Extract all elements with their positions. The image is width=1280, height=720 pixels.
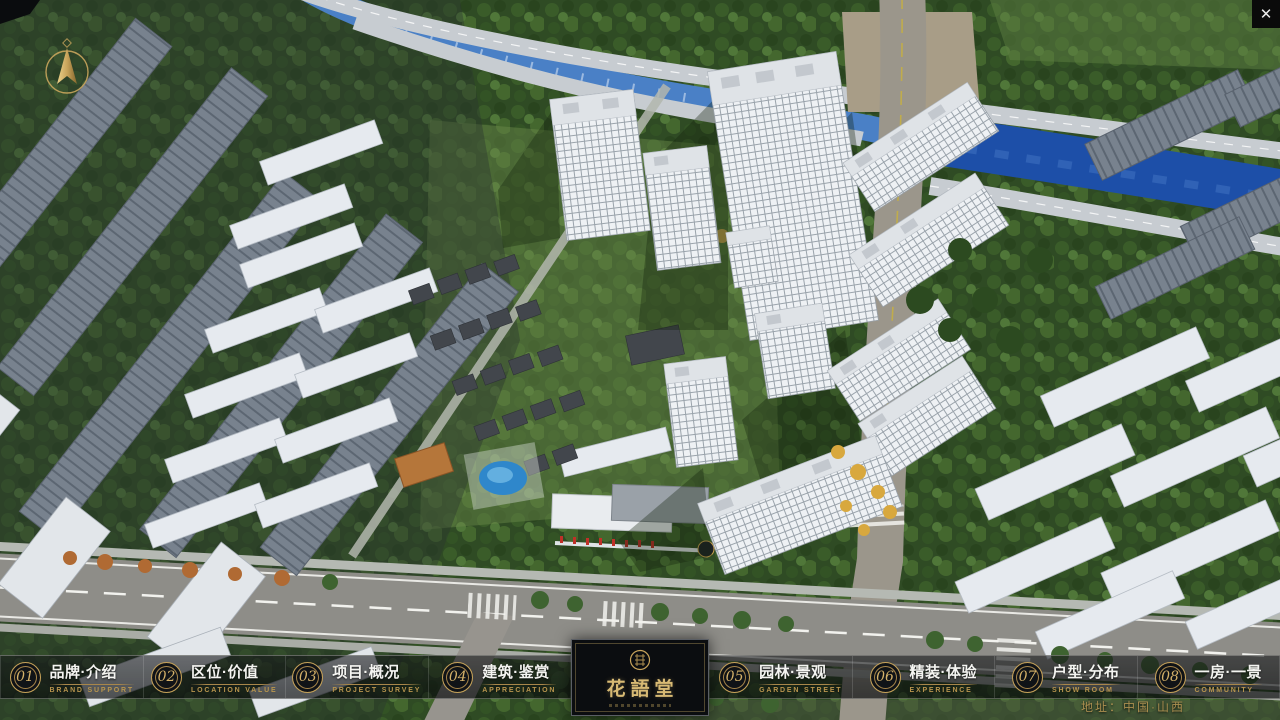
logo-seal-icon (629, 649, 651, 671)
nav-number-badge: 02 (151, 662, 182, 693)
nav-number-badge: 06 (870, 662, 901, 693)
nav-gold-rule (1195, 684, 1263, 685)
nav-label-zh: 建筑·鉴赏 (482, 661, 550, 682)
nav-item-garden-landscape[interactable]: 05 园林·景观GARDEN STREET (710, 656, 853, 698)
project-logo-panel[interactable]: 花語堂 (571, 639, 709, 716)
nav-label-en: PROJECT SURVEY (332, 687, 421, 694)
nav-label-en: APPRECIATION (482, 687, 556, 694)
aerial-map-view[interactable]: .tw{fill:url(#pw);stroke:#98a0a8;stroke-… (0, 0, 1280, 720)
presentation-window: .tw{fill:url(#pw);stroke:#98a0a8;stroke-… (0, 0, 1280, 720)
close-button[interactable]: ✕ (1252, 0, 1280, 28)
nav-gold-rule (50, 684, 134, 685)
nav-label-zh: 项目·概况 (332, 661, 400, 682)
nav-number-badge: 05 (719, 662, 750, 693)
nav-group-right: 05 园林·景观GARDEN STREET 06 精装·体验EXPERIENCE… (709, 656, 1280, 698)
nav-number-badge: 04 (442, 662, 473, 693)
nav-number-badge: 01 (10, 662, 41, 693)
nav-label-zh: 一房·一景 (1195, 661, 1263, 682)
nav-label-en: GARDEN STREET (759, 687, 842, 694)
nav-label-en: BRAND SUPPORT (50, 687, 134, 694)
nav-label-zh: 园林·景观 (759, 661, 827, 682)
nav-label-zh: 区位·价值 (191, 661, 259, 682)
nav-item-room-view[interactable]: 08 一房·一景COMMUNITY (1138, 656, 1280, 698)
nav-label-zh: 品牌·介绍 (50, 661, 118, 682)
nav-label-en: SHOW ROOM (1052, 687, 1114, 694)
close-icon: ✕ (1260, 5, 1273, 23)
nav-gold-rule (191, 684, 277, 685)
nav-item-interior-experience[interactable]: 06 精装·体验EXPERIENCE (853, 656, 996, 698)
nav-label-en: EXPERIENCE (910, 687, 973, 694)
nav-gold-rule (910, 684, 978, 685)
nav-label-zh: 户型·分布 (1052, 661, 1120, 682)
logo-subtitle (609, 704, 671, 707)
address-text: 地址：中国·山西 (1081, 698, 1185, 715)
logo-title: 花語堂 (601, 674, 678, 701)
nav-item-location-value[interactable]: 02 区位·价值LOCATION VALUE (144, 656, 287, 698)
nav-group-left: 01 品牌·介绍BRAND SUPPORT 02 区位·价值LOCATION V… (0, 656, 571, 698)
nav-label-zh: 精装·体验 (910, 661, 978, 682)
bottom-navigation: 01 品牌·介绍BRAND SUPPORT 02 区位·价值LOCATION V… (0, 655, 1280, 699)
nav-item-architecture[interactable]: 04 建筑·鉴赏APPRECIATION (429, 656, 572, 698)
nav-gold-rule (482, 684, 556, 685)
nav-item-floorplan-distribution[interactable]: 07 户型·分布SHOW ROOM (995, 656, 1138, 698)
nav-number-badge: 07 (1012, 662, 1043, 693)
nav-item-project-overview[interactable]: 03 项目·概况PROJECT SURVEY (286, 656, 429, 698)
nav-label-en: COMMUNITY (1195, 687, 1254, 694)
nav-number-badge: 03 (292, 662, 323, 693)
nav-gold-rule (332, 684, 421, 685)
nav-gold-rule (1052, 684, 1120, 685)
nav-number-badge: 08 (1155, 662, 1186, 693)
nav-gold-rule (759, 684, 842, 685)
nav-label-en: LOCATION VALUE (191, 687, 277, 694)
nav-item-brand-intro[interactable]: 01 品牌·介绍BRAND SUPPORT (1, 656, 144, 698)
